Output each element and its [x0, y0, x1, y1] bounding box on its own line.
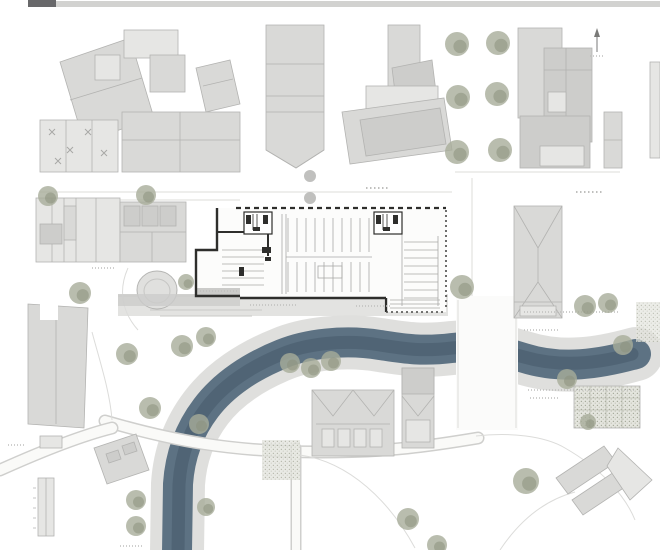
building — [94, 434, 149, 484]
tree-shadow — [494, 39, 507, 52]
tree-shadow — [453, 40, 466, 53]
tree-shadow — [308, 365, 319, 376]
tree-shadow — [458, 283, 471, 296]
tree-shadow — [620, 342, 631, 353]
street-tree-icon — [304, 170, 316, 182]
building — [124, 30, 178, 58]
tree-shadow — [179, 342, 191, 354]
tree-shadow — [147, 404, 159, 416]
building — [196, 60, 240, 112]
tree-shadow — [328, 358, 339, 369]
stair-core-right — [374, 212, 402, 234]
tree-shadow — [143, 192, 154, 203]
tree-shadow — [196, 421, 207, 432]
stipple-corner — [636, 302, 660, 342]
building — [122, 112, 240, 172]
tree-shadow — [405, 515, 417, 527]
building — [28, 304, 88, 428]
tree-shadow — [454, 93, 467, 106]
sheet-header-label-mark — [28, 0, 56, 7]
tree-shadow — [77, 289, 89, 301]
tree-shadow — [133, 523, 144, 534]
tree-shadow — [203, 504, 213, 514]
tree-shadow — [45, 193, 56, 204]
tree-shadow — [586, 419, 595, 428]
building — [40, 436, 62, 448]
tree-shadow — [124, 350, 136, 362]
building — [266, 25, 324, 168]
tree-shadow — [203, 334, 214, 345]
site-plan-sheet — [0, 0, 660, 550]
tree-shadow — [582, 302, 594, 314]
sheet-header-bar — [56, 1, 660, 7]
tree-shadow — [133, 497, 144, 508]
bridge-road — [456, 296, 518, 430]
site-plan-drawing — [0, 0, 660, 550]
tree-shadow — [453, 148, 466, 161]
tree-shadow — [287, 360, 298, 371]
tree-shadow — [496, 146, 509, 159]
tree-shadow — [564, 376, 575, 387]
stair-core-left — [244, 212, 272, 234]
street-tree-icon — [304, 192, 316, 204]
tree-shadow — [522, 476, 536, 490]
tree-shadow — [605, 300, 616, 311]
building — [40, 120, 118, 172]
stipple-bank — [262, 440, 300, 480]
building — [650, 62, 660, 158]
tree-shadow — [493, 90, 506, 103]
building — [150, 55, 185, 92]
tree-shadow — [184, 279, 193, 288]
